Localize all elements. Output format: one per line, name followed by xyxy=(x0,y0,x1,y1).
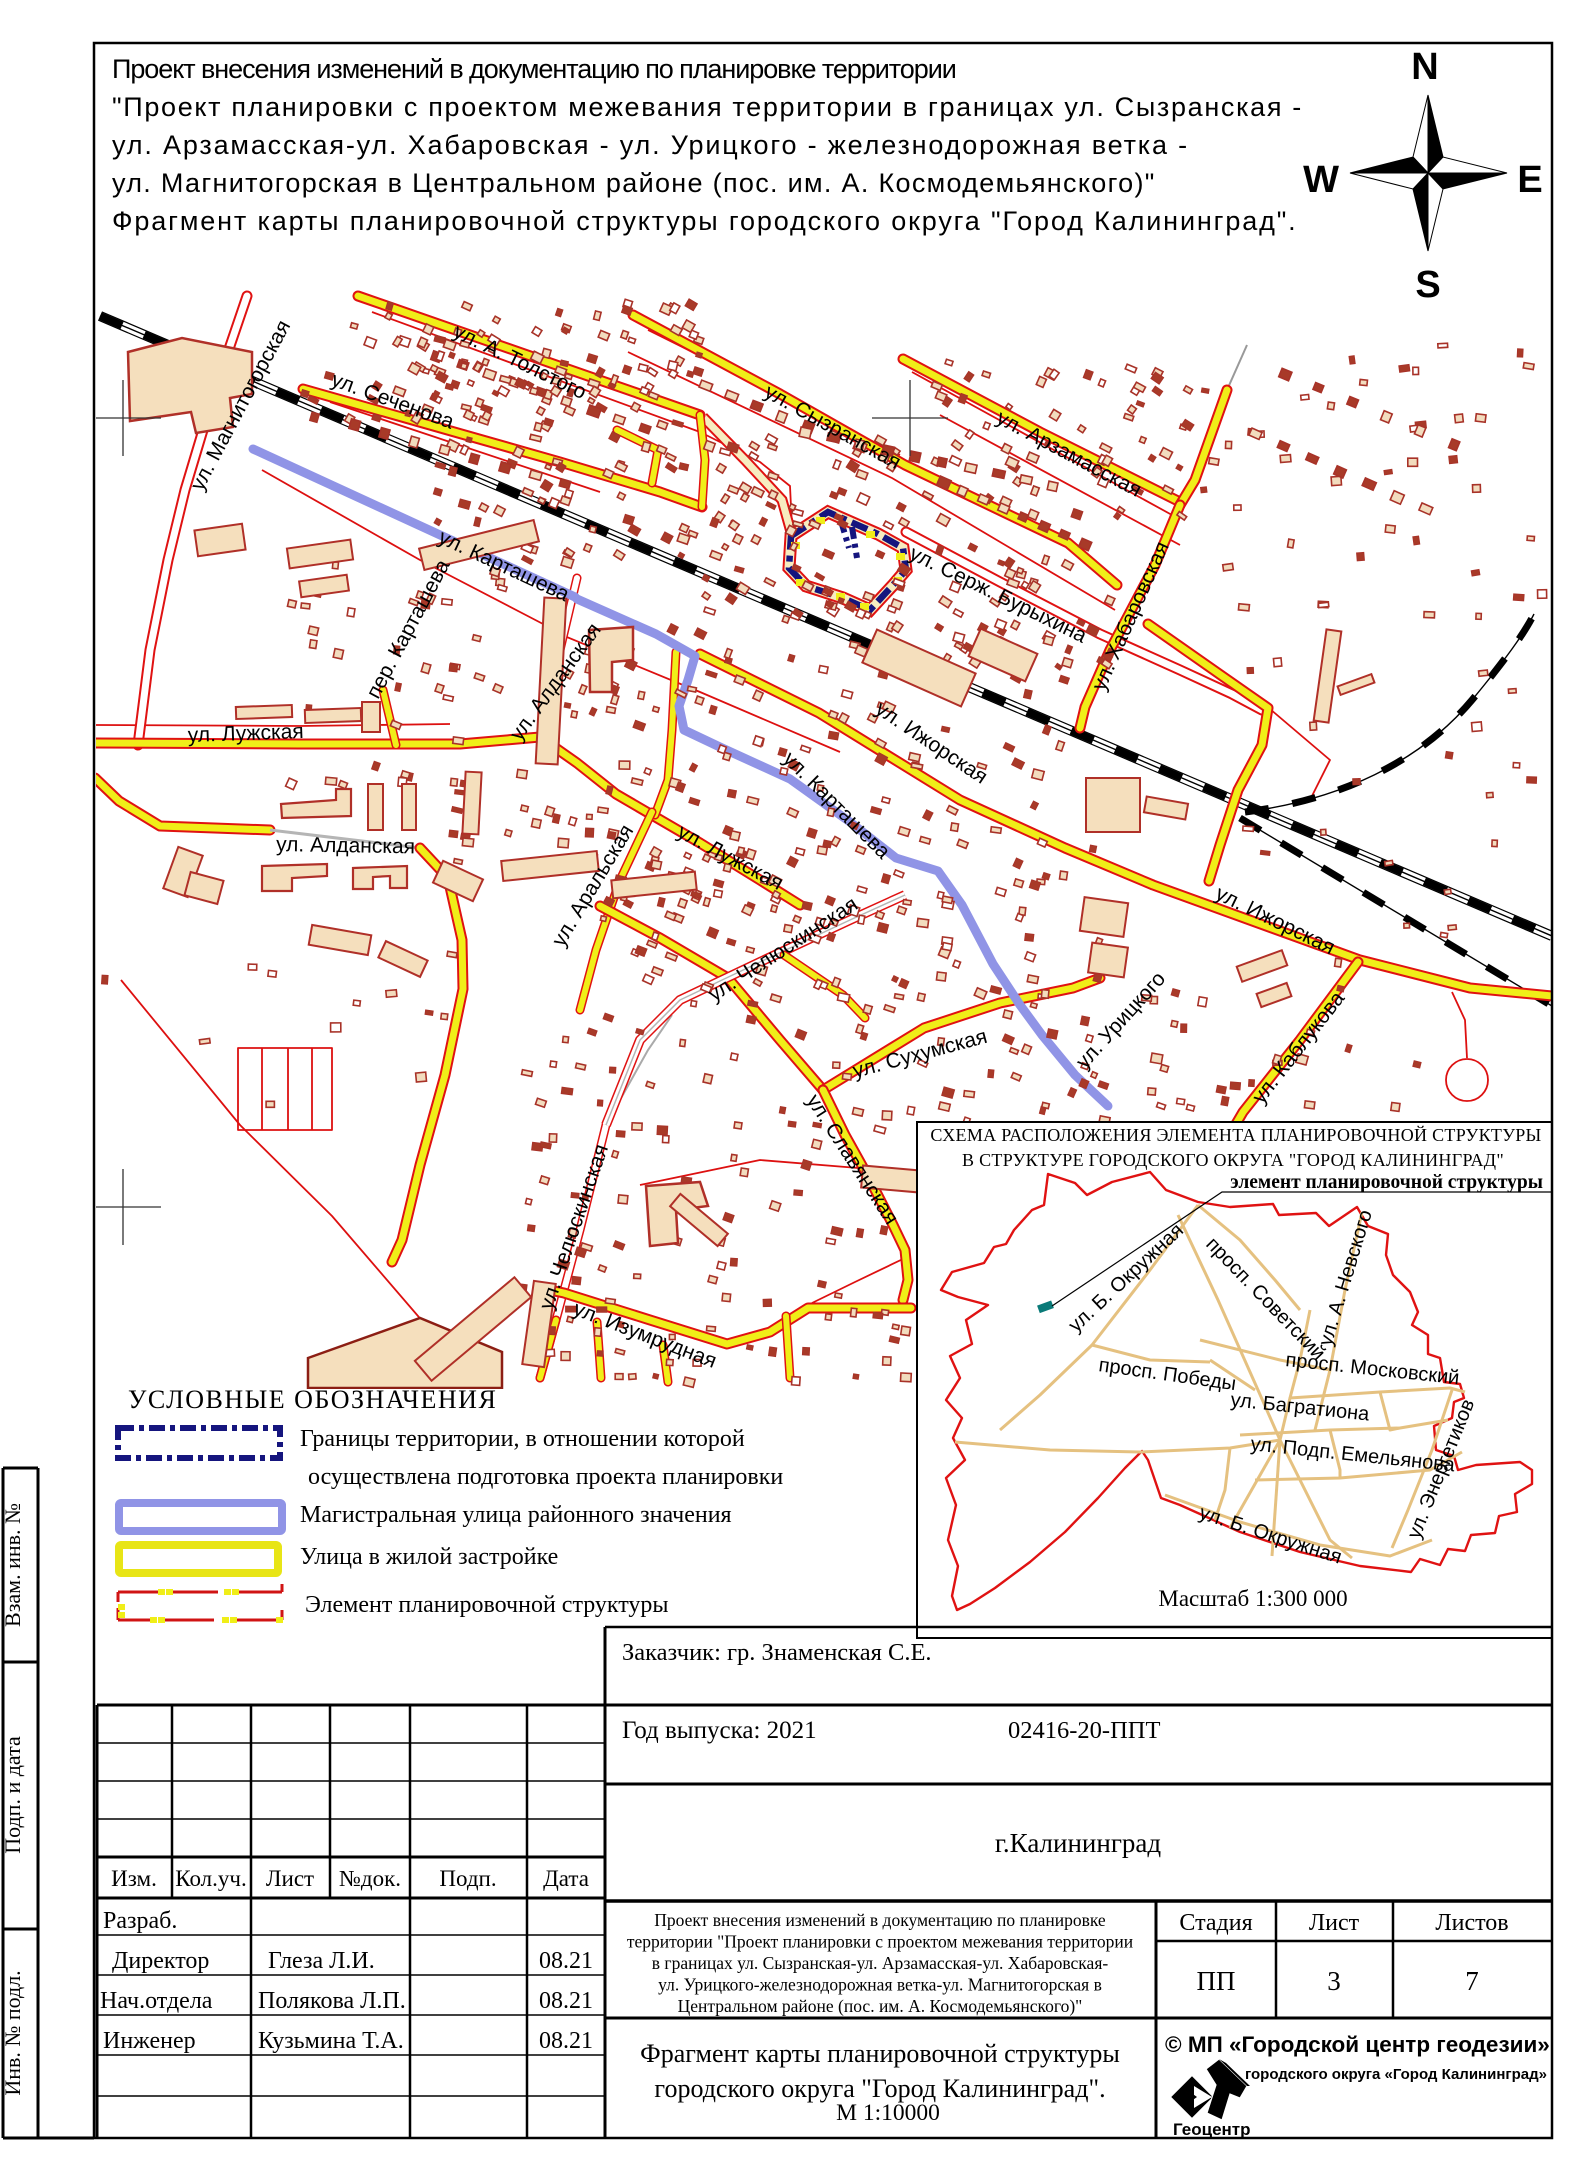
svg-text:Нач.отдела: Нач.отдела xyxy=(100,1988,213,2014)
svg-text:E: E xyxy=(1517,159,1542,201)
svg-text:ПП: ПП xyxy=(1197,1966,1236,1996)
svg-text:Фрагмент карты планировочной: Фрагмент карты планировочной структуры xyxy=(640,2039,1120,2068)
svg-text:Масштаб 1:300 000: Масштаб 1:300 000 xyxy=(1158,1586,1347,1611)
svg-text:Кол.уч.: Кол.уч. xyxy=(175,1866,246,1891)
svg-text:Элемент планировочной структур: Элемент планировочной структуры xyxy=(305,1592,669,1618)
svg-text:Магистральная улица районного: Магистральная улица районного значения xyxy=(300,1502,732,1528)
svg-text:М 1:10000: М 1:10000 xyxy=(836,2100,940,2126)
svg-text:Директор: Директор xyxy=(112,1948,209,1974)
svg-text:Разраб.: Разраб. xyxy=(103,1908,177,1934)
svg-text:08.21: 08.21 xyxy=(539,2028,593,2054)
svg-text:Заказчик: гр. Знаменская С.Е.: Заказчик: гр. Знаменская С.Е. xyxy=(622,1639,932,1666)
svg-text:02416-20-ППТ: 02416-20-ППТ xyxy=(1008,1717,1160,1744)
svg-text:ул. Арзамасская-ул. Хабаровска: ул. Арзамасская-ул. Хабаровская - ул. Ур… xyxy=(112,130,1189,160)
svg-text:Подп. и дата: Подп. и дата xyxy=(0,1736,25,1854)
svg-text:городского округа «Город Калин: городского округа «Город Калининград» xyxy=(1245,2066,1547,2083)
svg-text:Кузьмина Т.А.: Кузьмина Т.А. xyxy=(258,2028,404,2054)
svg-text:ул. Алданская: ул. Алданская xyxy=(276,833,415,858)
svg-text:№док.: №док. xyxy=(339,1866,401,1891)
svg-text:Проект внесения изменений в до: Проект внесения изменений в документацию… xyxy=(112,54,956,84)
svg-text:Центральном районе (пос. им. А: Центральном районе (пос. им. А. Космодем… xyxy=(678,1996,1083,2016)
svg-text:Геоцентр: Геоцентр xyxy=(1173,2120,1251,2139)
svg-text:ул. Урицкого-железнодорожная в: ул. Урицкого-железнодорожная ветка-ул. М… xyxy=(658,1975,1102,1995)
svg-text:Листов: Листов xyxy=(1435,1910,1508,1936)
svg-text:Дата: Дата xyxy=(543,1866,589,1891)
svg-text:7: 7 xyxy=(1465,1966,1479,1996)
svg-text:элемент планировочной структур: элемент планировочной структуры xyxy=(1230,1172,1543,1193)
svg-text:Стадия: Стадия xyxy=(1179,1910,1252,1936)
svg-text:Глеза Л.И.: Глеза Л.И. xyxy=(268,1948,375,1974)
svg-text:Лист: Лист xyxy=(1309,1910,1360,1936)
svg-text:В СТРУКТУРЕ ГОРОДСКОГО ОКРУГА: В СТРУКТУРЕ ГОРОДСКОГО ОКРУГА "ГОРОД КАЛ… xyxy=(962,1150,1504,1170)
svg-text:3: 3 xyxy=(1327,1966,1341,1996)
svg-text:Взам. инв. №: Взам. инв. № xyxy=(0,1503,25,1627)
svg-text:Проект внесения изменений в до: Проект внесения изменений в документацию… xyxy=(654,1910,1106,1930)
svg-text:ул. Лужская: ул. Лужская xyxy=(187,720,304,747)
svg-text:Фрагмент карты планировочной: Фрагмент карты планировочной структуры г… xyxy=(112,206,1298,236)
svg-text:г.Калининград: г.Калининград xyxy=(995,1828,1161,1858)
svg-text:N: N xyxy=(1411,46,1438,88)
svg-text:городского округа "Город Калин: городского округа "Город Калининград". xyxy=(654,2074,1105,2103)
svg-text:осуществлена подготовка проект: осуществлена подготовка проекта планиров… xyxy=(308,1464,783,1490)
svg-text:Полякова Л.П.: Полякова Л.П. xyxy=(258,1988,406,2014)
svg-text:Инженер: Инженер xyxy=(103,2028,196,2054)
svg-text:© МП «Городской центр геодезии: © МП «Городской центр геодезии» xyxy=(1165,2032,1550,2057)
svg-text:Границы территории, в отношени: Границы территории, в отношении которой xyxy=(300,1426,745,1452)
svg-text:СХЕМА РАСПОЛОЖЕНИЯ ЭЛЕМЕНТА ПЛ: СХЕМА РАСПОЛОЖЕНИЯ ЭЛЕМЕНТА ПЛАНИРОВОЧНО… xyxy=(930,1125,1541,1145)
svg-text:Лист: Лист xyxy=(266,1866,314,1891)
svg-text:Подп.: Подп. xyxy=(439,1866,496,1891)
svg-text:в границах ул. Сызранская-ул.: в границах ул. Сызранская-ул. Арзамасска… xyxy=(652,1953,1109,1973)
svg-text:территории "Проект планировки: территории "Проект планировки с проектом… xyxy=(627,1932,1133,1952)
svg-text:Год выпуска: 2021: Год выпуска: 2021 xyxy=(622,1717,817,1744)
svg-text:УСЛОВНЫЕ ОБОЗНАЧЕНИЯ: УСЛОВНЫЕ ОБОЗНАЧЕНИЯ xyxy=(128,1385,497,1414)
svg-text:ул. Магнитогорская в Центральн: ул. Магнитогорская в Центральном районе … xyxy=(112,168,1156,198)
svg-text:08.21: 08.21 xyxy=(539,1988,593,2014)
svg-text:08.21: 08.21 xyxy=(539,1948,593,1974)
svg-text:"Проект планировки с проектом: "Проект планировки с проектом межевания … xyxy=(112,92,1303,122)
svg-text:Изм.: Изм. xyxy=(111,1866,157,1891)
svg-text:W: W xyxy=(1303,159,1339,201)
svg-text:Инв. № подл.: Инв. № подл. xyxy=(0,1970,25,2095)
svg-text:Улица в жилой застройке: Улица в жилой застройке xyxy=(300,1544,558,1570)
svg-text:S: S xyxy=(1415,264,1440,306)
